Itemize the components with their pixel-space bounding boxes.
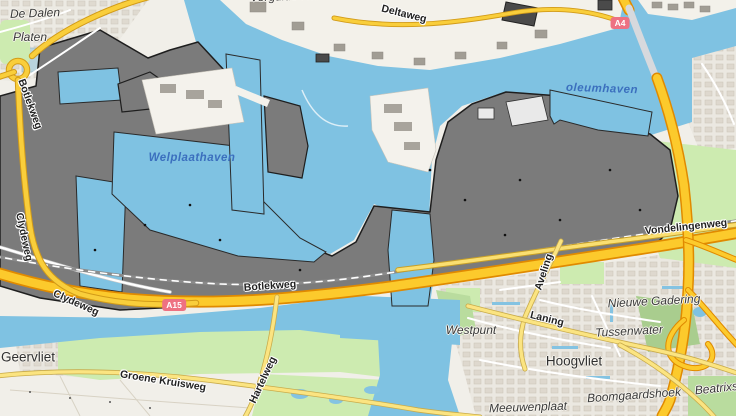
label-tussenwater: Tussenwater [595,322,663,340]
label-laning: Laning [529,309,565,329]
label-vondelingenweg: Vondelingenweg [644,217,727,238]
label-vergulde-hand: Vergulde Hand [250,0,330,4]
label-geervliet: Geervliet [1,350,55,365]
map-labels: De DalenPlatenVergulde HandDeltawegBotle… [0,0,736,416]
route-shield-a15: A15 [162,299,186,311]
label-aveling: Aveling [532,252,555,291]
label-deltaweg: Deltaweg [380,3,428,26]
label-westpunt: Westpunt [446,323,496,337]
route-shield-a4: A4 [611,17,630,29]
map-canvas[interactable]: De DalenPlatenVergulde HandDeltawegBotle… [0,0,736,416]
label-welplaathaven: Welplaathaven [149,152,236,164]
label-platen: Platen [13,30,47,44]
label-nieuwe-gadering: Nieuwe Gadering [607,292,700,311]
label-beatrixst: Beatrixst [694,379,736,398]
label-boomgaardshoek: Boomgaardshoek [587,385,682,406]
label-clydeweg: Clydeweg [51,288,101,319]
label-botlekweg-nw: Botlekweg [15,77,44,130]
label-hoogvliet: Hoogvliet [546,354,602,369]
label-clydeweg-vertical: Clydeweg [13,212,35,262]
label-hartelweg: Hartelweg [247,355,279,406]
label-petroleumhaven: oleumhaven [566,82,638,97]
label-botlekweg: Botlekweg [243,278,296,294]
label-groene-kruisweg: Groene Kruisweg [119,368,207,393]
label-meeuwenplaat: Meeuwenplaat [489,399,568,416]
label-de-dalen: De Dalen [10,5,60,21]
